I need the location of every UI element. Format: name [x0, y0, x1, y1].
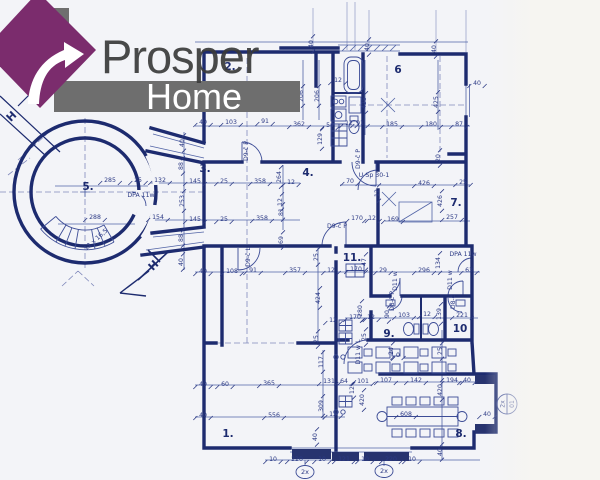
dimension-label: 25: [361, 333, 368, 341]
dimension-label: 29: [379, 267, 387, 274]
room-number-label: 6: [394, 64, 401, 76]
room-number-label: 4.: [302, 167, 313, 179]
note-label: U-Sp 30-1: [359, 172, 390, 179]
detail-badge-text: 01: [509, 400, 516, 408]
dimension-label: 185: [386, 121, 398, 128]
dimension-label: 362: [293, 121, 305, 128]
dimension-label: 288: [89, 214, 101, 221]
dimension-label: 40: [199, 381, 207, 388]
dimension-label: 47: [361, 258, 368, 266]
dimension-label: 139: [436, 308, 443, 320]
dimension-label: 170: [350, 266, 362, 273]
dimension-label: 40: [312, 433, 319, 441]
dimension-label: 101: [357, 378, 369, 385]
dimension-label: 69: [278, 236, 285, 244]
room-number-label: 1.: [222, 428, 233, 440]
dimension-label: 108: [226, 268, 238, 275]
note-label: D8-č: [449, 294, 457, 309]
dimension-label: 40: [483, 411, 491, 418]
note-label: D11 w: [392, 271, 399, 291]
note-label: D9-č P: [327, 222, 347, 230]
dimension-label: 134: [435, 257, 442, 269]
dimension-label: 40: [431, 45, 438, 53]
dimension-label: 54: [326, 122, 334, 129]
window-count-label: 2x: [301, 468, 309, 476]
dimension-label: 253: [179, 195, 186, 207]
dimension-label: 103: [225, 119, 237, 126]
dimension-label: 40: [178, 258, 185, 266]
dimension-label: 25: [134, 177, 142, 184]
dimension-label: 425: [361, 97, 368, 109]
dimension-label: 132: [154, 177, 166, 184]
note-label: D11 w L: [355, 339, 362, 365]
dimension-label: 40: [179, 139, 186, 147]
dimension-label: 426: [437, 195, 444, 207]
dimension-label: 81: [278, 208, 285, 216]
dimension-label: 194: [446, 377, 458, 384]
dimension-label: 88: [178, 162, 185, 170]
dimension-label: 25: [220, 178, 228, 185]
dimension-label: 40: [437, 448, 444, 456]
dimension-label: 40: [199, 412, 207, 419]
dimension-label: 556: [268, 412, 280, 419]
note-label: D9-č P: [354, 149, 362, 169]
dimension-label: 87: [455, 121, 463, 128]
note-label: D11 w: [447, 270, 454, 290]
dimension-label: 608: [400, 411, 412, 418]
dimension-label: 25: [313, 335, 320, 343]
note-label: D9-č L: [244, 247, 252, 267]
dimension-label: 40: [473, 80, 481, 87]
dimension-label: 40: [463, 377, 471, 384]
dimension-label: 40: [308, 40, 315, 48]
dimension-label: 91: [261, 118, 269, 125]
room-number-label: 5.: [82, 181, 93, 193]
dimension-label: 12: [329, 317, 337, 324]
dimension-label: 221: [456, 312, 468, 319]
dimension-label: 426: [418, 180, 430, 187]
dimension-label: 296: [418, 267, 430, 274]
dimension-label: 131: [323, 378, 335, 385]
dimension-label: 24: [388, 347, 395, 355]
dimension-label: 280: [357, 305, 364, 317]
dimension-label: 309: [318, 400, 325, 412]
dimension-label: 257: [446, 214, 458, 221]
dimension-label: 145: [189, 216, 201, 223]
dimension-label: 358: [256, 215, 268, 222]
dimension-label: 20: [435, 154, 442, 162]
dimension-label: 25: [437, 347, 444, 355]
dimension-label: 12: [374, 189, 381, 197]
dimension-label: 180: [425, 121, 437, 128]
dimension-label: 60: [221, 381, 229, 388]
detail-badge-text: 2x: [500, 400, 507, 408]
dimension-label: 10: [269, 456, 277, 463]
note-label: DPA 11w: [127, 192, 154, 199]
dimension-label: 121: [338, 456, 350, 463]
dimension-label: 220: [385, 456, 397, 463]
dimension-label: 88: [178, 234, 185, 242]
dimension-label: 12: [329, 411, 337, 418]
dimension-label: 117: [318, 356, 325, 368]
dimension-label: 420: [359, 394, 366, 406]
dimension-label: 129: [317, 133, 324, 145]
dimension-label: 170: [351, 215, 363, 222]
dimension-label: 25: [220, 216, 228, 223]
floor-plan: 4040401220620642542540401039136254129118…: [0, 0, 600, 480]
dimension-label: 12: [368, 215, 376, 222]
dimension-label: 358: [254, 178, 266, 185]
dimension-label: 12: [423, 311, 431, 318]
dimension-label: 91: [249, 267, 257, 274]
dimension-label: 40: [199, 119, 207, 126]
room-number-label: 9.: [383, 328, 394, 340]
dimension-label: 63: [465, 267, 473, 274]
dimension-label: 12: [334, 77, 342, 84]
dimension-label: 365: [263, 380, 275, 387]
dimension-label: 40: [199, 268, 207, 275]
dimension-label: 12: [367, 314, 375, 321]
dimension-label: 264: [276, 171, 283, 183]
room-number-label: 11.: [343, 252, 362, 264]
scanned-floor-plan-page: 4040401220620642542540401039136254129118…: [0, 0, 600, 480]
dimension-label: 103: [398, 312, 410, 319]
dimension-label: 142: [410, 377, 422, 384]
dimension-label: 0: [396, 352, 400, 359]
window-count-label: 2x: [380, 467, 388, 475]
dimension-label: 424: [315, 292, 322, 304]
dimension-label: 70: [346, 178, 354, 185]
room-number-label: 2.: [224, 61, 235, 73]
dimension-label: 10: [318, 456, 326, 463]
dimension-label: 25: [313, 253, 320, 261]
dimension-label: 145: [189, 178, 201, 185]
dimension-label: 12: [287, 179, 295, 186]
note-label: DPA 11w: [449, 251, 476, 258]
room-number-label: 10: [453, 323, 468, 335]
dimension-label: 91: [356, 120, 364, 127]
dimension-label: 220: [291, 456, 303, 463]
dimension-label: 64: [340, 378, 348, 385]
dimension-label: 206: [314, 90, 321, 102]
dimension-label: 154: [152, 214, 164, 221]
dimension-label: 357: [289, 267, 301, 274]
room-number-label: 7.: [450, 197, 461, 209]
note-label: D9-č P: [242, 141, 250, 161]
dimension-label: 10: [361, 456, 369, 463]
dimension-label: 206: [298, 90, 305, 102]
dimension-label: 10: [408, 456, 416, 463]
dimension-label: 425: [433, 96, 440, 108]
room-number-label: 8.: [455, 428, 466, 440]
dimension-label: 285: [104, 177, 116, 184]
dimension-label: 12: [327, 267, 335, 274]
dimension-label: 12: [349, 386, 356, 394]
dimension-label: 420: [437, 384, 444, 396]
room-number-label: 3.: [199, 163, 210, 175]
note-label: D8-č P: [388, 291, 396, 311]
dimension-label: 107: [380, 377, 392, 384]
dimension-label: 25: [459, 179, 467, 186]
dimension-label: 40: [364, 43, 371, 51]
dimension-label: 169: [387, 216, 399, 223]
